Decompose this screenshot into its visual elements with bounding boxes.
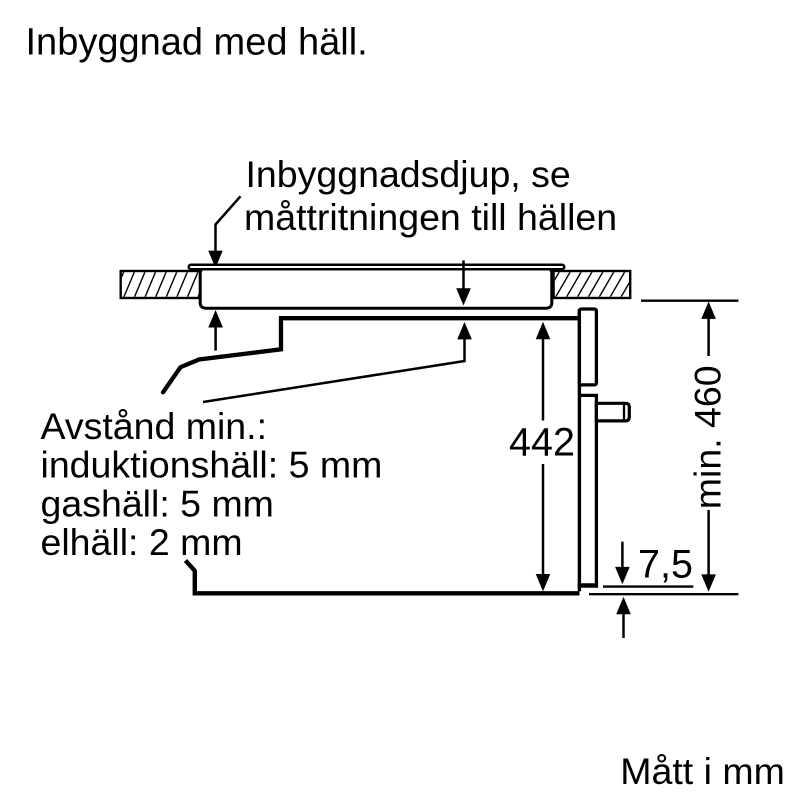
svg-text:Avstånd min.:: Avstånd min.: bbox=[41, 405, 268, 447]
svg-text:Mått i mm: Mått i mm bbox=[620, 750, 785, 792]
svg-text:måttritningen till hällen: måttritningen till hällen bbox=[244, 196, 617, 238]
svg-text:elhäll: 2 mm: elhäll: 2 mm bbox=[41, 521, 243, 563]
svg-text:Inbyggnadsdjup, se: Inbyggnadsdjup, se bbox=[246, 153, 571, 195]
svg-text:gashäll: 5 mm: gashäll: 5 mm bbox=[41, 482, 274, 524]
svg-text:Inbyggnad med häll.: Inbyggnad med häll. bbox=[26, 21, 368, 63]
svg-text:induktionshäll: 5 mm: induktionshäll: 5 mm bbox=[41, 444, 383, 486]
svg-text:min. 460: min. 460 bbox=[686, 365, 728, 509]
svg-text:7,5: 7,5 bbox=[638, 543, 693, 587]
svg-text:442: 442 bbox=[509, 420, 575, 464]
